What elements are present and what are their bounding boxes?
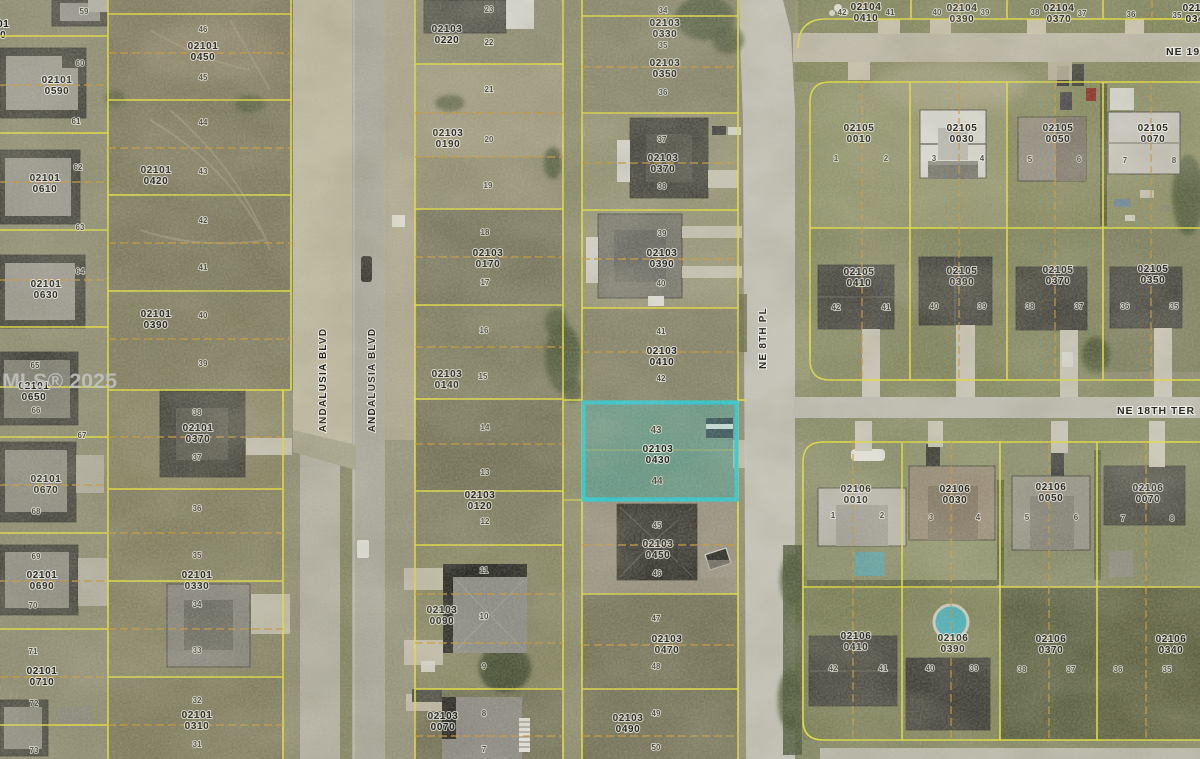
svg-text:MLS® 2025: MLS® 2025: [2, 369, 117, 393]
